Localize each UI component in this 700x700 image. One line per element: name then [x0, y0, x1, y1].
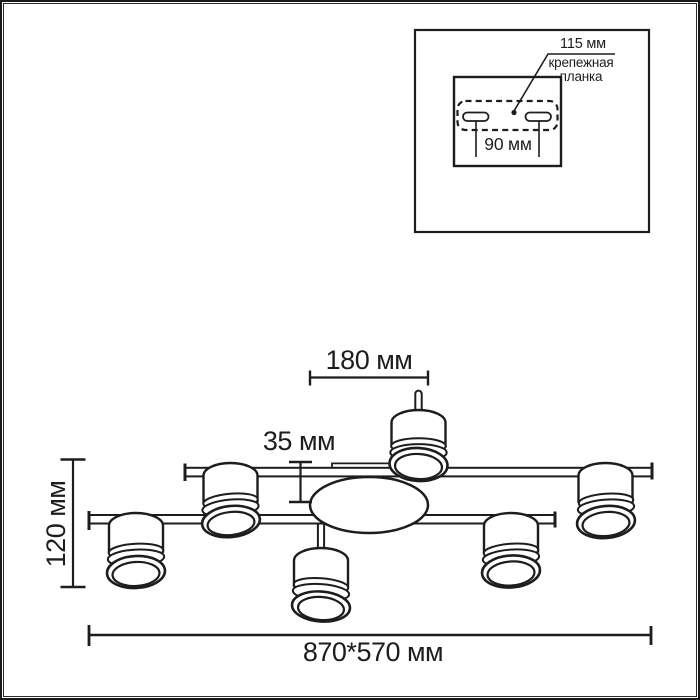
dim-120-label: 120 мм	[42, 481, 72, 568]
ceiling-canopy	[310, 477, 428, 533]
dim-180-label: 180 мм	[326, 346, 413, 376]
mounting-plate-label: крепежная планка	[533, 56, 629, 84]
spotlight-bottom-center	[291, 523, 351, 623]
dim-overall-label: 870*570 мм	[303, 638, 443, 668]
mounting-slot-right	[526, 113, 552, 122]
spotlight-far-right	[576, 463, 637, 540]
mount-width-label: 115 мм	[560, 37, 606, 53]
spotlight-lower-left	[106, 513, 166, 589]
mounting-slot-left	[463, 113, 489, 122]
spotlight-lower-right	[481, 513, 541, 589]
dim-35-label: 35 мм	[263, 427, 335, 457]
mounting-plate-dashed-outline	[458, 101, 558, 130]
spotlight-top-center	[389, 391, 449, 483]
technical-drawing-page: 115 мм крепежная планка 90 мм 180 мм 35 …	[0, 0, 700, 700]
fixture-drawing	[89, 391, 652, 624]
spotlight-middle-left	[201, 463, 262, 540]
hole-spacing-label: 90 мм	[484, 135, 531, 154]
